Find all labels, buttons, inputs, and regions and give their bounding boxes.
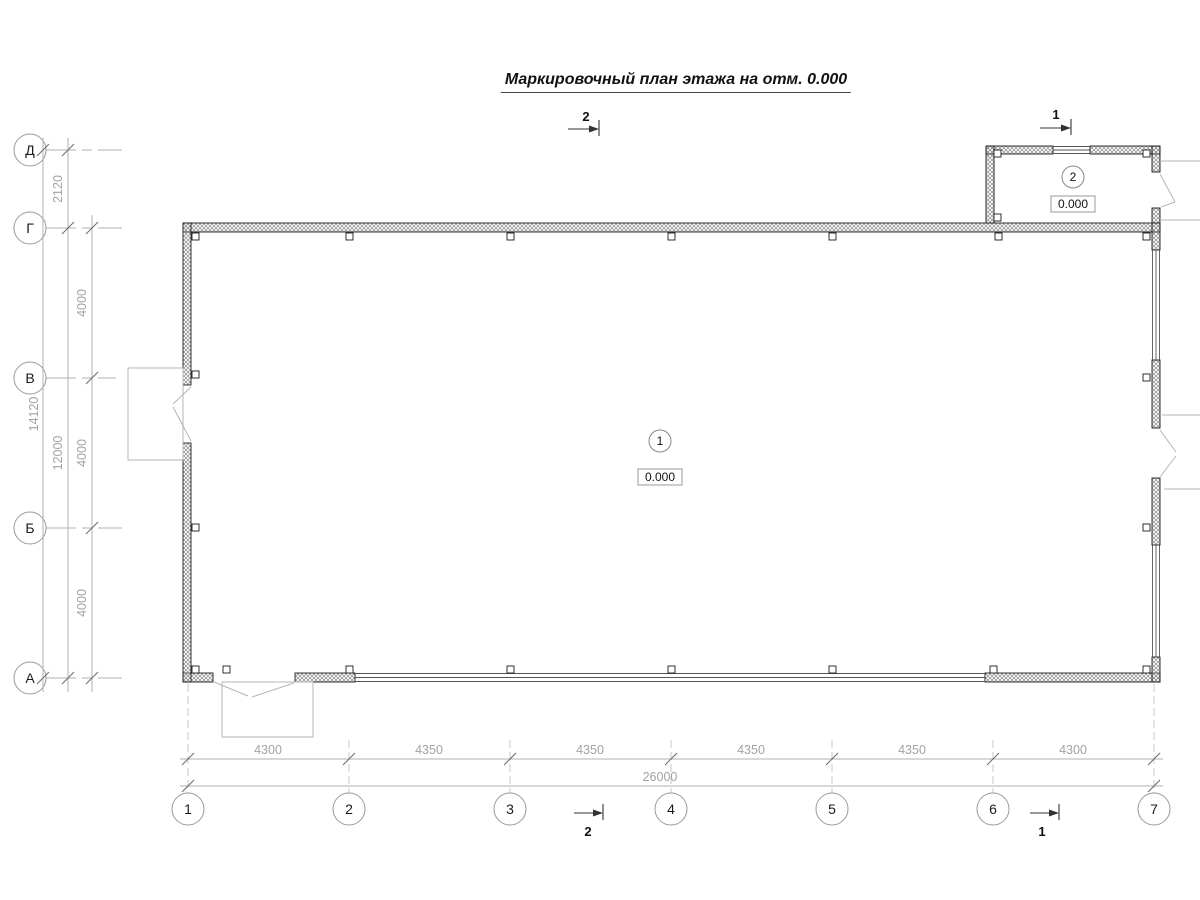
door-left bbox=[173, 387, 191, 441]
section-mark-bottom-1: 1 bbox=[1030, 804, 1059, 839]
wall-hatch-group bbox=[183, 146, 1160, 682]
dim-h-4300-2: 4300 bbox=[1059, 743, 1087, 757]
dim-h-4350-3: 4350 bbox=[737, 743, 765, 757]
floor-plan-canvas: Д Г В Б А 2120 4000 4000 4000 12000 1412… bbox=[0, 0, 1200, 900]
section-number: 1 bbox=[1052, 107, 1059, 122]
dim-h-26000: 26000 bbox=[643, 770, 678, 784]
axis-label-d: Д bbox=[25, 142, 35, 158]
col-axis-group: 1 2 3 4 5 6 7 bbox=[172, 793, 1170, 825]
room-elevation: 0.000 bbox=[645, 470, 675, 484]
dim-h-4350-2: 4350 bbox=[576, 743, 604, 757]
dim-h-4350-1: 4350 bbox=[415, 743, 443, 757]
section-number: 2 bbox=[584, 824, 591, 839]
section-arrow-icon bbox=[593, 810, 603, 817]
axis-label-a: А bbox=[25, 670, 35, 686]
door-bottom bbox=[214, 682, 294, 697]
drawing-sheet: Маркировочный план этажа на отм. 0.000 bbox=[0, 0, 1200, 900]
section-mark-bottom-2: 2 bbox=[574, 804, 603, 839]
dim-v-4000-2: 4000 bbox=[75, 439, 89, 467]
leader-line-group bbox=[1160, 161, 1200, 489]
section-mark-top-2: 2 bbox=[568, 109, 599, 136]
section-arrow-icon bbox=[589, 126, 599, 133]
window-right-lower bbox=[1153, 545, 1160, 657]
door-annex bbox=[1160, 174, 1175, 207]
axis-label-4: 4 bbox=[667, 801, 675, 817]
dim-h-4300-1: 4300 bbox=[254, 743, 282, 757]
dim-h-4350-4: 4350 bbox=[898, 743, 926, 757]
room-number: 2 bbox=[1070, 170, 1077, 184]
axis-label-v: В bbox=[25, 370, 34, 386]
section-arrow-icon bbox=[1061, 125, 1071, 132]
dim-v-4000-3: 4000 bbox=[75, 589, 89, 617]
section-arrow-icon bbox=[1049, 810, 1059, 817]
horizontal-dimension-group: 4300 4350 4350 4350 4350 4300 26000 bbox=[180, 684, 1163, 793]
porch-bottom bbox=[222, 682, 313, 737]
axis-label-7: 7 bbox=[1150, 801, 1158, 817]
door-right bbox=[1160, 430, 1176, 477]
room-elevation: 0.000 bbox=[1058, 197, 1088, 211]
door-swing-group bbox=[173, 174, 1176, 697]
axis-label-5: 5 bbox=[828, 801, 836, 817]
axis-label-6: 6 bbox=[989, 801, 997, 817]
dim-v-14120: 14120 bbox=[27, 397, 41, 432]
window-right-upper bbox=[1153, 250, 1160, 360]
axis-label-3: 3 bbox=[506, 801, 514, 817]
dim-v-2120: 2120 bbox=[51, 175, 65, 203]
axis-label-2: 2 bbox=[345, 801, 353, 817]
room-label-2: 2 0.000 bbox=[1051, 166, 1095, 212]
section-number: 1 bbox=[1038, 824, 1045, 839]
room-number: 1 bbox=[657, 434, 664, 448]
window-bottom bbox=[355, 674, 985, 682]
porch-outline-group bbox=[128, 368, 313, 737]
axis-label-1: 1 bbox=[184, 801, 192, 817]
dim-v-4000-1: 4000 bbox=[75, 289, 89, 317]
axis-label-b: Б bbox=[25, 520, 34, 536]
window-annex-top bbox=[1053, 147, 1090, 154]
section-mark-top-1: 1 bbox=[1040, 107, 1071, 135]
section-number: 2 bbox=[582, 109, 589, 124]
room-label-1: 1 0.000 bbox=[638, 430, 682, 485]
axis-label-g: Г bbox=[26, 220, 34, 236]
porch-left bbox=[128, 368, 183, 460]
dim-v-12000: 12000 bbox=[51, 436, 65, 471]
